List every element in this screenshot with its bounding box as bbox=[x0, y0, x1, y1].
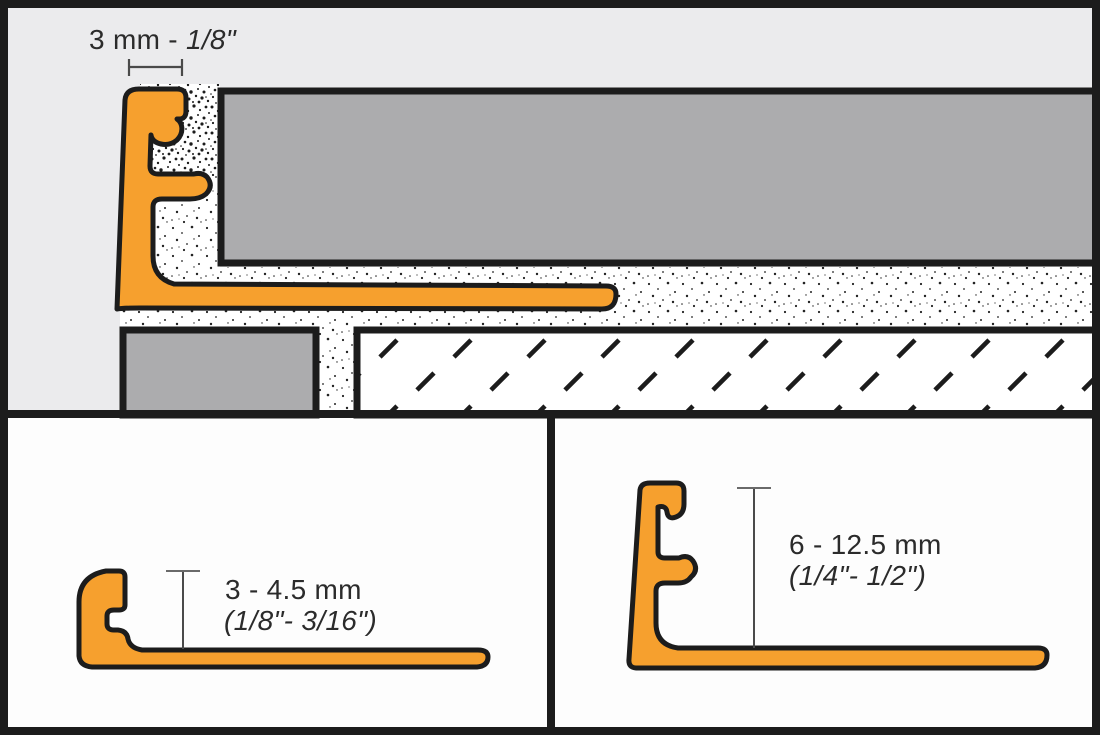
mortar-joint-strip bbox=[319, 330, 357, 418]
edge-width-label-metric: 3 mm - bbox=[89, 24, 186, 55]
frame-border-top bbox=[0, 0, 1100, 8]
large-profile-height-label-metric: 6 - 12.5 mm bbox=[789, 529, 942, 561]
small-variant-panel-background bbox=[8, 418, 547, 727]
small-profile-height-label-metric: 3 - 4.5 mm bbox=[225, 574, 362, 606]
substrate bbox=[357, 330, 1100, 415]
edge-width-label: 3 mm - 1/8" bbox=[89, 24, 236, 56]
existing-covering bbox=[123, 330, 316, 415]
edge-width-label-imperial: 1/8" bbox=[186, 24, 236, 55]
frame-border-left bbox=[0, 0, 8, 735]
frame-border-divider bbox=[547, 410, 555, 735]
tile bbox=[221, 91, 1100, 263]
frame-border-right bbox=[1092, 0, 1100, 735]
diagram-canvas bbox=[0, 0, 1100, 735]
large-profile-height-label-imperial: (1/4"- 1/2") bbox=[789, 560, 926, 592]
installation-cross-section bbox=[117, 59, 1100, 418]
diagram-page: 3 mm - 1/8" 3 - 4.5 mm (1/8"- 3/16") 6 -… bbox=[0, 0, 1100, 735]
frame-border-bottom bbox=[0, 727, 1100, 735]
small-profile-height-label-imperial: (1/8"- 3/16") bbox=[224, 605, 377, 637]
